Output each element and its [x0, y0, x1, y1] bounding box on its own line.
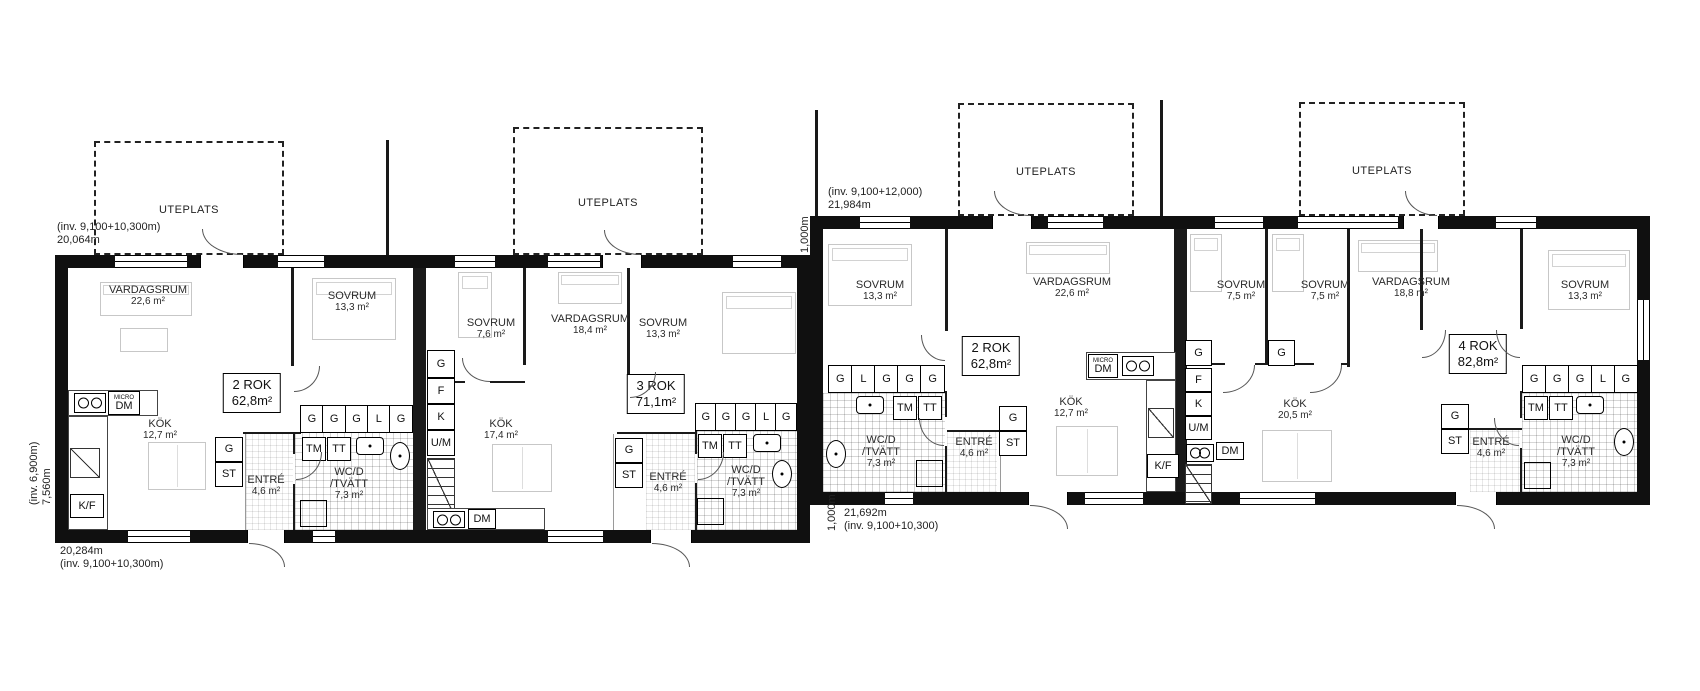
wardrobe-cell: G — [874, 365, 899, 393]
room-label-entre-b1: ENTRÉ4,6 m² — [955, 436, 992, 460]
floor-plan: UTEPLATS UTEPLATS UTEPLATS UTEPLATS — [0, 0, 1700, 691]
dining-table — [492, 444, 552, 492]
window — [1048, 216, 1103, 229]
stove-icon — [1148, 408, 1174, 438]
dishwasher: MICRODM — [108, 391, 140, 415]
uteplats-label: UTEPLATS — [1016, 166, 1076, 178]
window — [860, 216, 910, 229]
wardrobe-cell: G — [1545, 365, 1569, 393]
window — [115, 255, 187, 268]
window — [548, 255, 600, 268]
window — [313, 530, 335, 543]
wardrobe-row-b1: G L G G G — [828, 365, 945, 393]
apartment-label-a1: 2 ROK62,8m² — [223, 373, 281, 413]
pantry-shelves — [1185, 464, 1212, 504]
entrance-door — [247, 530, 285, 543]
wardrobe-cell: G — [345, 405, 369, 433]
fridge: K — [1185, 392, 1212, 416]
wardrobe-cell: G — [715, 403, 737, 431]
wardrobe-cell: L — [1591, 365, 1615, 393]
uteplats-label: UTEPLATS — [578, 197, 638, 209]
window — [885, 492, 913, 505]
uteplats-label: UTEPLATS — [159, 204, 219, 216]
dishwasher: MICRODM — [1088, 354, 1118, 378]
oven-micro: U/M — [427, 430, 455, 456]
dishwasher: DM — [1216, 442, 1244, 460]
dimension-right-bottom: 21,692m(inv. 9,100+10,300) — [844, 507, 938, 533]
wardrobe-cell: L — [755, 403, 777, 431]
window — [1340, 216, 1398, 229]
freezer: F — [1185, 368, 1212, 392]
room-label-entre-a1: ENTRÉ4,6 m² — [247, 474, 284, 498]
balcony-door — [602, 255, 642, 268]
patio-fence — [815, 110, 818, 216]
dimension-offset-bottom: 1,000m — [826, 494, 839, 531]
dryer: TT — [327, 437, 351, 461]
toilet — [772, 460, 792, 488]
kitchen-sink — [1122, 356, 1154, 376]
room-label-vardagsrum-a1: VARDAGSRUM22,6 m² — [109, 284, 187, 308]
wall — [945, 391, 947, 417]
room-label-kok-b1: KÖK12,7 m² — [1054, 396, 1088, 420]
wardrobe-cell: G — [1522, 365, 1546, 393]
dimension-left-side: (inv. 6,900m)7,560m — [28, 442, 54, 505]
wall — [293, 484, 295, 530]
door-swing-arc — [652, 543, 690, 567]
entrance-door — [1028, 492, 1068, 505]
wardrobe-row-a2: G G G L G — [695, 403, 797, 431]
room-label-sovrum-a1: SOVRUM13,3 m² — [328, 290, 376, 314]
dishwasher: DM — [468, 509, 496, 529]
window — [548, 530, 603, 543]
window — [1298, 216, 1346, 229]
wardrobe-cell: G — [1568, 365, 1592, 393]
room-label-wc-b2: WC/D/TVÄTT7,3 m² — [1557, 434, 1595, 470]
wall — [1520, 229, 1523, 329]
window — [278, 255, 324, 268]
shower-box — [916, 460, 943, 487]
wall — [523, 268, 526, 365]
toilet — [826, 440, 846, 468]
balcony-door — [1403, 216, 1439, 229]
dimension-offset-top: 1,000m — [799, 216, 812, 253]
shower-box — [300, 500, 327, 527]
wall — [945, 229, 948, 331]
room-label-wc-a1: WC/D/TVÄTT7,3 m² — [330, 466, 368, 502]
wardrobe-cell: G — [389, 405, 413, 433]
wall — [291, 268, 294, 366]
wardrobe-cell: L — [367, 405, 391, 433]
room-label-sovrum1-a2: SOVRUM7,6 m² — [467, 317, 515, 341]
wardrobe-g: G — [427, 350, 455, 378]
room-label-sovrum3-b2: SOVRUM13,3 m² — [1561, 279, 1609, 303]
wardrobe-g: G — [215, 437, 243, 462]
room-label-kok-a2: KÖK17,4 m² — [484, 418, 518, 442]
window — [1240, 492, 1315, 505]
wall — [617, 432, 697, 434]
wardrobe-g: G — [1268, 340, 1295, 366]
room-label-vardagsrum-a2: VARDAGSRUM18,4 m² — [551, 313, 629, 337]
single-bed — [1272, 234, 1304, 292]
oven-micro: U/M — [1185, 416, 1212, 440]
wardrobe-cell: G — [897, 365, 922, 393]
washing-machine: TM — [1524, 396, 1548, 420]
balcony-door — [200, 255, 244, 268]
door-swing-arc — [249, 543, 285, 567]
washing-machine: TM — [893, 396, 917, 420]
room-label-sovrum1-b2: SOVRUM7,5 m² — [1217, 279, 1265, 303]
kitchen-sink — [433, 511, 465, 528]
coffee-table — [120, 328, 168, 352]
patio-fence — [386, 140, 389, 255]
dryer: TT — [723, 434, 747, 458]
double-bed — [722, 292, 796, 354]
room-label-vardagsrum-b1: VARDAGSRUM22,6 m² — [1033, 276, 1111, 300]
window — [128, 530, 190, 543]
wall — [1255, 363, 1265, 365]
room-label-wc-a2: WC/D/TVÄTT7,3 m² — [727, 464, 765, 500]
room-label-wc-b1: WC/D/TVÄTT7,3 m² — [862, 434, 900, 470]
wardrobe-cell: L — [851, 365, 876, 393]
kitchen-sink — [1186, 444, 1214, 462]
sofa — [1026, 242, 1110, 274]
wardrobe-cell: G — [775, 403, 797, 431]
bathroom-sink — [1576, 396, 1604, 414]
fridge-freezer: K/F — [1147, 454, 1179, 478]
sofa — [1358, 240, 1438, 272]
uteplats-area-b2: UTEPLATS — [1299, 102, 1465, 216]
dryer: TT — [1549, 396, 1573, 420]
window — [1496, 216, 1536, 229]
window — [1085, 492, 1143, 505]
room-label-vardagsrum-b2: VARDAGSRUM18,8 m² — [1372, 276, 1450, 300]
entrance-door — [650, 530, 692, 543]
wall — [947, 430, 1001, 432]
uteplats-label: UTEPLATS — [1352, 165, 1412, 177]
dimension-left-bottom: 20,284m(inv. 9,100+10,300m) — [60, 545, 163, 571]
patio-fence — [1160, 100, 1163, 216]
room-label-sovrum-b1: SOVRUM13,3 m² — [856, 279, 904, 303]
sofa — [558, 272, 622, 304]
door-swing-arc — [1457, 505, 1495, 529]
stove-icon — [70, 448, 100, 478]
bathroom-sink — [753, 434, 781, 452]
wall — [490, 381, 525, 383]
dining-table — [1056, 426, 1118, 476]
party-wall — [413, 268, 426, 530]
window — [1637, 300, 1650, 360]
wall-light — [245, 434, 246, 530]
wardrobe-g: G — [999, 406, 1027, 431]
wardrobe-g: G — [1185, 340, 1212, 366]
cleaning-closet-st: ST — [1441, 429, 1469, 454]
kitchen-sink — [74, 393, 106, 413]
room-label-kok-a1: KÖK12,7 m² — [143, 418, 177, 442]
room-label-kok-b2: KÖK20,5 m² — [1278, 398, 1312, 422]
room-label-sovrum2-b2: SOVRUM7,5 m² — [1301, 279, 1349, 303]
entrance-door — [1455, 492, 1497, 505]
room-label-sovrum2-a2: SOVRUM13,3 m² — [639, 317, 687, 341]
room-label-entre-a2: ENTRÉ4,6 m² — [649, 471, 686, 495]
wall — [455, 381, 465, 383]
cleaning-closet-st: ST — [999, 431, 1027, 456]
dimension-right-top: (inv. 9,100+12,000)21,984m — [828, 186, 922, 212]
dimension-left-top: (inv. 9,100+10,300m)20,064m — [57, 221, 160, 247]
wardrobe-cell: G — [735, 403, 757, 431]
dryer: TT — [918, 396, 942, 420]
wardrobe-cell: G — [322, 405, 346, 433]
uteplats-area-b1: UTEPLATS — [958, 103, 1134, 216]
wardrobe-cell: G — [1614, 365, 1638, 393]
window — [1215, 216, 1263, 229]
apartment-label-b1: 2 ROK62,8m² — [962, 336, 1020, 376]
freezer: F — [427, 378, 455, 404]
wardrobe-cell: G — [920, 365, 945, 393]
fridge: K — [427, 404, 455, 430]
bathroom-sink — [856, 396, 884, 414]
cleaning-closet-st: ST — [215, 462, 243, 487]
wardrobe-cell: G — [695, 403, 717, 431]
wardrobe-cell: G — [828, 365, 853, 393]
toilet — [390, 442, 410, 470]
bathroom-sink — [356, 437, 384, 455]
wardrobe-row-b2: G G G L G — [1522, 365, 1638, 393]
wardrobe-cell: G — [300, 405, 324, 433]
toilet — [1614, 428, 1634, 456]
window — [733, 255, 781, 268]
wall — [1520, 448, 1522, 492]
wall — [293, 432, 295, 454]
dining-table — [148, 442, 206, 490]
shower-box — [697, 498, 724, 525]
window — [455, 255, 495, 268]
wardrobe-row-a1: G G G L G — [300, 405, 413, 433]
wall — [695, 430, 697, 454]
fridge-freezer: K/F — [70, 494, 104, 518]
wall-light — [613, 434, 614, 530]
dining-table — [1262, 430, 1332, 482]
balcony-door — [992, 216, 1032, 229]
wardrobe-g: G — [615, 438, 643, 463]
door-swing-arc — [1030, 505, 1068, 529]
wall — [945, 446, 947, 492]
wardrobe-g: G — [1441, 404, 1469, 429]
cleaning-closet-st: ST — [615, 463, 643, 488]
wall — [1520, 391, 1522, 418]
shower-box — [1524, 462, 1551, 489]
